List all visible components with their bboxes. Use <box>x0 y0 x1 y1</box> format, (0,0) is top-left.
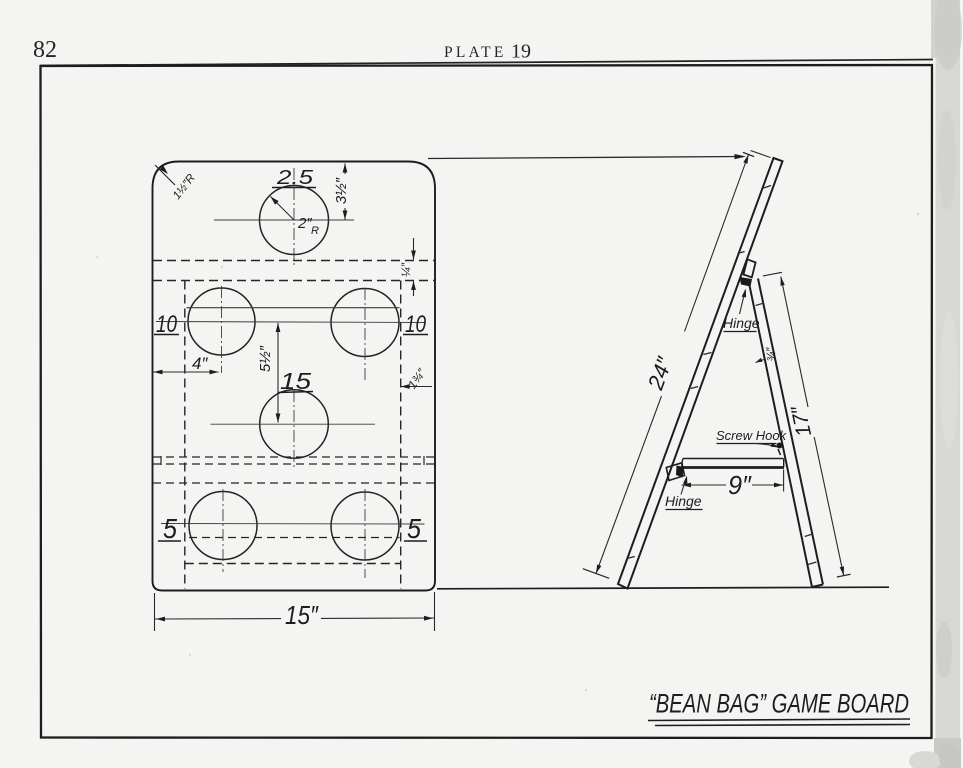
svg-text:2.5: 2.5 <box>276 167 314 189</box>
svg-text:19: 19 <box>511 41 531 63</box>
svg-text:5: 5 <box>407 513 421 544</box>
svg-text:PLATE: PLATE <box>444 44 507 61</box>
svg-text:R: R <box>311 225 319 237</box>
svg-text:¾″: ¾″ <box>763 346 778 362</box>
svg-text:Hinge: Hinge <box>723 315 760 331</box>
svg-text:4″: 4″ <box>192 354 208 373</box>
svg-text:9″: 9″ <box>728 470 752 500</box>
svg-text:Screw Hook: Screw Hook <box>716 428 788 443</box>
svg-text:82: 82 <box>33 37 57 63</box>
svg-text:“BEAN BAG” GAME BOARD: “BEAN BAG” GAME BOARD <box>649 689 909 719</box>
svg-text:Hinge: Hinge <box>665 493 702 509</box>
svg-text:15: 15 <box>280 368 311 394</box>
svg-text:¼″: ¼″ <box>399 262 413 277</box>
svg-text:5: 5 <box>163 513 177 544</box>
svg-text:5½″: 5½″ <box>257 345 274 372</box>
svg-text:15″: 15″ <box>285 600 319 630</box>
svg-text:3½″: 3½″ <box>333 177 350 204</box>
